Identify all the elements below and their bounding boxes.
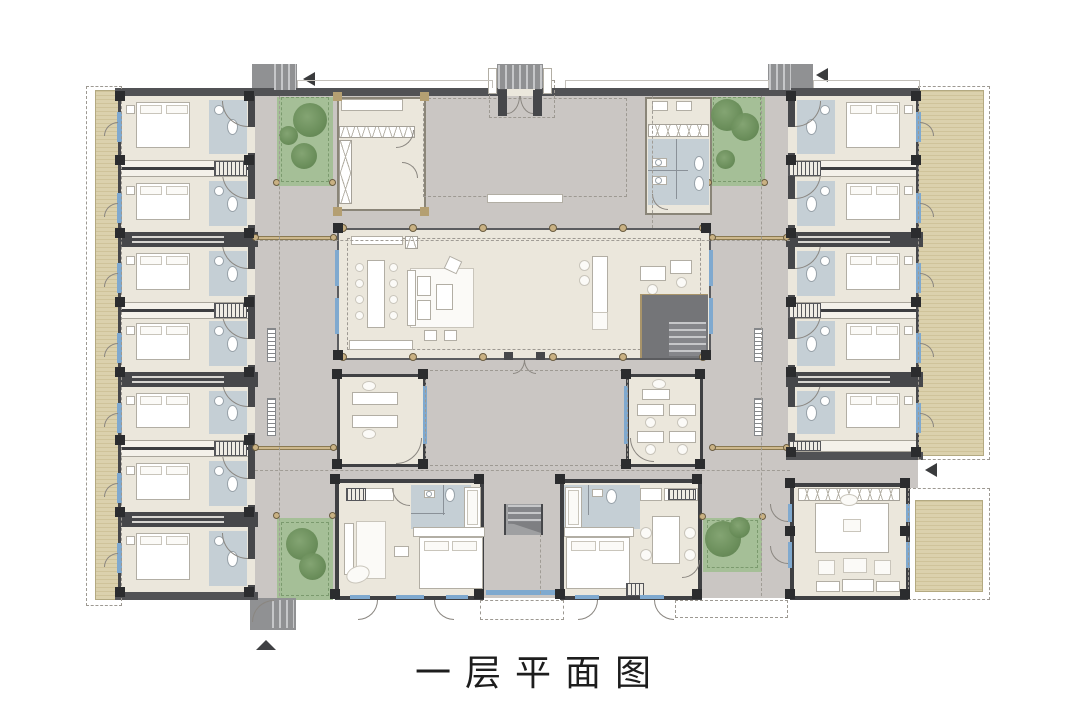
column xyxy=(474,589,484,599)
column xyxy=(330,474,340,484)
pillow xyxy=(850,186,872,195)
column xyxy=(695,459,705,469)
door-arc xyxy=(578,600,598,620)
pillow xyxy=(166,105,188,114)
pillow xyxy=(850,326,872,335)
sink-icon xyxy=(820,256,830,266)
porch-steps xyxy=(508,505,541,524)
column xyxy=(115,435,125,445)
window xyxy=(575,595,599,599)
column xyxy=(115,587,125,597)
column xyxy=(911,228,921,238)
door-arc xyxy=(770,504,788,522)
eave-line xyxy=(813,80,920,81)
door-gap xyxy=(248,559,255,585)
chair xyxy=(355,311,364,320)
chair xyxy=(389,263,398,272)
column xyxy=(695,369,705,379)
nightstand xyxy=(126,105,135,114)
window xyxy=(350,595,370,599)
column xyxy=(115,91,125,101)
column xyxy=(911,91,921,101)
column xyxy=(115,228,125,238)
door-arc xyxy=(358,600,378,620)
cabinet-grill xyxy=(668,489,696,500)
pillow xyxy=(599,541,624,551)
party-wall xyxy=(786,232,923,247)
sink-icon xyxy=(820,396,830,406)
grid-line xyxy=(540,534,541,594)
door-arc xyxy=(392,488,410,506)
chair xyxy=(362,381,376,391)
toilet-icon xyxy=(694,176,704,191)
toilet-icon xyxy=(445,488,455,502)
column xyxy=(115,367,125,377)
column xyxy=(244,367,254,377)
pillow xyxy=(424,541,449,551)
beam xyxy=(255,446,337,450)
chair xyxy=(684,527,696,539)
door-gap xyxy=(788,127,795,153)
door-gap xyxy=(788,269,795,295)
eave-line xyxy=(919,80,920,88)
tree-icon xyxy=(291,143,317,169)
tree-icon xyxy=(716,150,735,169)
column xyxy=(619,353,627,361)
column xyxy=(420,92,429,101)
column xyxy=(244,155,254,165)
chair xyxy=(355,279,364,288)
tree-icon xyxy=(299,553,326,580)
party-wall xyxy=(118,232,258,247)
door-gap xyxy=(248,127,255,153)
column xyxy=(244,435,254,445)
column xyxy=(701,223,711,233)
pillow xyxy=(166,536,188,545)
column xyxy=(252,444,259,451)
column xyxy=(555,589,565,599)
window xyxy=(640,595,664,599)
column xyxy=(900,589,910,599)
window xyxy=(709,298,713,334)
wall-slit xyxy=(132,236,224,238)
nightstand xyxy=(904,256,913,265)
desk xyxy=(669,431,696,443)
door-gap xyxy=(788,407,795,433)
column xyxy=(329,512,336,519)
tree-icon xyxy=(293,103,327,137)
column xyxy=(692,474,702,484)
party-wall xyxy=(118,372,258,387)
eave-line xyxy=(297,80,493,81)
chair xyxy=(874,560,891,575)
pillow xyxy=(140,396,162,405)
porch-dashed xyxy=(480,600,564,620)
column xyxy=(786,447,796,457)
south-wall-west-wing xyxy=(115,592,258,600)
rail xyxy=(504,504,506,535)
side-table xyxy=(394,546,409,557)
nightstand xyxy=(904,326,913,335)
toilet-icon xyxy=(227,476,238,492)
column xyxy=(409,224,417,232)
column xyxy=(115,297,125,307)
wall-slit xyxy=(132,516,224,518)
column xyxy=(244,297,254,307)
column xyxy=(619,224,627,232)
basin xyxy=(426,491,432,497)
chair xyxy=(355,263,364,272)
wall-slit xyxy=(132,376,224,378)
divider xyxy=(411,513,445,514)
nightstand xyxy=(904,396,913,405)
pillow xyxy=(140,186,162,195)
cabinet-grill xyxy=(214,161,247,176)
column xyxy=(244,228,254,238)
column xyxy=(785,478,795,488)
eave-line xyxy=(492,80,493,88)
screen xyxy=(267,398,276,436)
bench xyxy=(487,194,563,203)
pillow xyxy=(166,396,188,405)
column xyxy=(786,367,796,377)
chair xyxy=(677,417,688,428)
door-arc xyxy=(252,600,274,622)
wall-slit xyxy=(132,241,224,243)
cabinet-grill xyxy=(346,488,366,501)
eave-line xyxy=(565,80,566,88)
rail xyxy=(541,504,543,535)
sofa-icon xyxy=(407,270,416,326)
pillow xyxy=(876,105,898,114)
column xyxy=(692,589,702,599)
divider xyxy=(588,485,589,515)
plan-title: 一层平面图 xyxy=(0,644,1080,696)
sink-icon xyxy=(214,326,224,336)
pillow xyxy=(876,256,898,265)
column xyxy=(549,353,557,361)
grid-line xyxy=(652,96,653,228)
column xyxy=(418,459,428,469)
pillow xyxy=(571,541,596,551)
window xyxy=(446,595,468,599)
eave-line xyxy=(768,80,769,88)
pillow xyxy=(850,396,872,405)
direction-arrow xyxy=(925,463,937,477)
door-gap xyxy=(788,339,795,365)
column xyxy=(785,589,795,599)
stall-divider xyxy=(648,170,688,171)
column xyxy=(115,155,125,165)
column xyxy=(409,353,417,361)
pillow xyxy=(166,256,188,265)
pillow xyxy=(140,466,162,475)
column xyxy=(244,587,254,597)
mat xyxy=(816,581,840,592)
coffee-table xyxy=(436,284,453,310)
stall-divider xyxy=(676,139,677,199)
toilet-icon xyxy=(806,196,817,212)
nightstand xyxy=(126,466,135,475)
bathroom xyxy=(411,485,471,529)
chair xyxy=(676,277,687,288)
stool xyxy=(424,330,437,341)
nightstand xyxy=(904,186,913,195)
basin xyxy=(655,159,662,166)
pillow xyxy=(876,326,898,335)
column xyxy=(549,224,557,232)
column xyxy=(786,228,796,238)
door-gap xyxy=(248,199,255,225)
chair xyxy=(843,558,867,573)
door-gap xyxy=(248,339,255,365)
toilet-icon xyxy=(806,336,817,352)
court-dashed xyxy=(425,370,628,466)
sink-icon xyxy=(820,326,830,336)
column xyxy=(333,92,342,101)
eave-line xyxy=(813,80,814,88)
door-arc xyxy=(654,600,674,620)
entrance-steps xyxy=(498,65,542,89)
mat xyxy=(876,581,900,592)
toilet-icon xyxy=(227,266,238,282)
counter xyxy=(640,488,662,501)
dining-table xyxy=(367,260,385,328)
nightstand xyxy=(126,396,135,405)
chair xyxy=(645,417,656,428)
column xyxy=(761,179,768,186)
column xyxy=(244,507,254,517)
column xyxy=(418,369,428,379)
column xyxy=(479,224,487,232)
column xyxy=(786,155,796,165)
stair-steps-icon xyxy=(272,600,294,628)
eave-line xyxy=(565,80,769,81)
door-arc xyxy=(630,438,654,462)
cabinet xyxy=(648,124,709,137)
nightstand xyxy=(126,186,135,195)
wall-slit xyxy=(798,241,890,243)
chair xyxy=(640,527,652,539)
column xyxy=(911,155,921,165)
counter xyxy=(676,101,692,111)
pillow xyxy=(452,541,477,551)
sofa-seat xyxy=(417,300,431,320)
grid-line xyxy=(761,96,762,596)
column xyxy=(900,478,910,488)
wall-slit xyxy=(798,381,890,383)
office-desk xyxy=(670,260,692,274)
column xyxy=(420,207,429,216)
door-arc xyxy=(652,194,668,210)
column xyxy=(786,297,796,307)
window xyxy=(335,250,339,286)
column xyxy=(333,223,343,233)
cabinet xyxy=(339,140,352,204)
column xyxy=(115,507,125,517)
chair xyxy=(640,549,652,561)
door-gap xyxy=(248,407,255,433)
door-gap xyxy=(248,479,255,505)
east-wing-south-wall xyxy=(786,452,923,460)
column xyxy=(329,179,336,186)
pillow xyxy=(166,186,188,195)
tree-icon xyxy=(279,126,298,145)
column xyxy=(621,459,631,469)
pillow xyxy=(140,256,162,265)
eave-line xyxy=(297,80,298,88)
reception-counter xyxy=(592,312,608,330)
column xyxy=(333,207,342,216)
window xyxy=(335,298,339,334)
chair xyxy=(389,295,398,304)
sink-icon xyxy=(820,186,830,196)
basin xyxy=(655,177,662,184)
stool xyxy=(444,330,457,341)
window xyxy=(788,542,792,568)
desk xyxy=(352,392,398,405)
tub-inner xyxy=(568,490,579,525)
column xyxy=(701,350,711,360)
door-gap xyxy=(788,199,795,225)
column xyxy=(911,447,921,457)
wall-slit xyxy=(798,376,890,378)
door-jamb xyxy=(504,352,513,360)
toilet-icon xyxy=(694,156,704,171)
door-jamb xyxy=(536,352,545,360)
sink-icon xyxy=(820,105,830,115)
column xyxy=(244,91,254,101)
grid-line xyxy=(279,96,280,596)
stair-steps-icon xyxy=(769,64,791,90)
wall-slit xyxy=(132,381,224,383)
door-jamb xyxy=(498,90,507,116)
toilet-icon xyxy=(806,405,817,421)
chair xyxy=(355,295,364,304)
pillow xyxy=(850,256,872,265)
beam xyxy=(712,446,788,450)
sink-icon xyxy=(214,186,224,196)
nightstand xyxy=(126,256,135,265)
nightstand xyxy=(904,105,913,114)
teacher-desk xyxy=(642,389,670,400)
column xyxy=(709,444,716,451)
door-arc xyxy=(396,130,414,148)
chair xyxy=(362,429,376,439)
nightstand xyxy=(126,536,135,545)
column xyxy=(699,513,706,520)
stair-steps-icon xyxy=(274,64,296,90)
tree-icon xyxy=(729,517,750,538)
toilet-icon xyxy=(227,405,238,421)
chair xyxy=(579,275,590,286)
nightstand xyxy=(126,326,135,335)
pillow xyxy=(876,186,898,195)
pillow xyxy=(166,466,188,475)
door-jamb xyxy=(533,90,542,116)
pillow xyxy=(140,326,162,335)
pillow xyxy=(140,105,162,114)
column xyxy=(330,444,337,451)
column xyxy=(911,297,921,307)
chair xyxy=(840,494,858,506)
eave-dashed xyxy=(908,488,990,600)
column xyxy=(785,526,795,536)
side-table xyxy=(405,236,418,249)
wall-slit xyxy=(798,236,890,238)
dining-table xyxy=(652,516,680,564)
door-arc xyxy=(434,600,454,620)
plan-details xyxy=(0,0,1080,720)
chair xyxy=(652,379,666,389)
counter xyxy=(341,99,403,111)
sink-icon xyxy=(214,466,224,476)
pillow xyxy=(876,396,898,405)
chair xyxy=(579,260,590,271)
screen xyxy=(267,328,276,362)
door-arc xyxy=(682,560,700,578)
column xyxy=(332,459,342,469)
party-wall xyxy=(786,372,923,387)
tub-inner xyxy=(467,490,478,525)
grid-line xyxy=(255,470,790,471)
divider xyxy=(443,485,444,515)
office-desk xyxy=(640,266,666,281)
desk xyxy=(352,415,398,428)
sink-icon xyxy=(214,256,224,266)
column xyxy=(333,350,343,360)
dresser xyxy=(564,527,634,537)
column xyxy=(900,526,910,536)
desk xyxy=(669,404,696,416)
chair xyxy=(389,279,398,288)
tree-icon xyxy=(731,113,759,141)
column xyxy=(330,589,340,599)
cabinet-grill xyxy=(214,441,247,456)
column xyxy=(786,91,796,101)
window xyxy=(396,595,424,599)
dresser xyxy=(413,527,485,537)
toilet-icon xyxy=(227,336,238,352)
party-wall xyxy=(118,512,258,527)
column xyxy=(332,369,342,379)
sofa-seat xyxy=(417,276,431,296)
window xyxy=(709,250,713,286)
door-arc xyxy=(770,546,788,564)
bench xyxy=(349,340,413,350)
pillow xyxy=(140,536,162,545)
pillow xyxy=(166,326,188,335)
column xyxy=(474,474,484,484)
chair xyxy=(818,560,835,575)
wall-slit xyxy=(132,521,224,523)
direction-arrow xyxy=(303,72,315,86)
toilet-icon xyxy=(606,489,617,504)
column xyxy=(621,369,631,379)
toilet-icon xyxy=(227,196,238,212)
chair xyxy=(677,444,688,455)
glazing xyxy=(486,590,559,595)
counter xyxy=(652,101,668,111)
table-inset xyxy=(843,519,861,532)
sink-icon xyxy=(592,489,603,497)
grid-line xyxy=(255,240,790,241)
cabinet-grill xyxy=(214,303,247,318)
column xyxy=(479,353,487,361)
chair xyxy=(389,311,398,320)
door-arc xyxy=(402,162,418,178)
floor-plan: 一层平面图 xyxy=(0,0,1080,720)
